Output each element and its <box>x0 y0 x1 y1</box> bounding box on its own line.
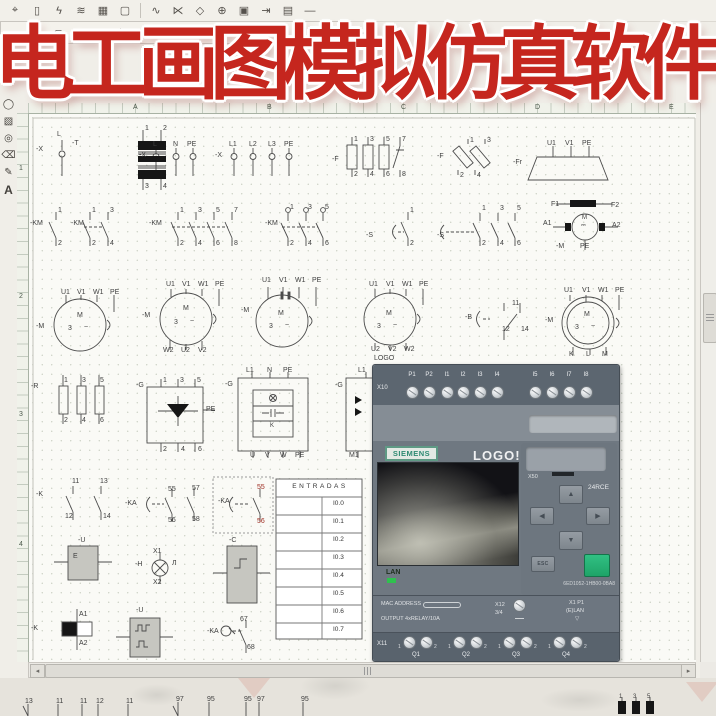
left-button[interactable]: ◀ <box>530 507 554 525</box>
ruler-vertical: 1234 <box>17 113 29 662</box>
winding-icon[interactable]: ≋ <box>70 2 92 19</box>
ruler-number: 1 <box>19 165 23 172</box>
circle-tool-icon[interactable]: ◎ <box>1 131 16 146</box>
ruler-number: 2 <box>19 293 23 300</box>
output-pair-label: 1 <box>398 644 401 650</box>
vertical-scrollbar[interactable] <box>700 103 716 662</box>
nozzle-icon-3[interactable]: ◁ <box>333 24 355 41</box>
terminal-screw <box>563 386 576 399</box>
line-icon[interactable]: — <box>299 2 321 19</box>
plc-terminal-label: I5 <box>527 372 543 378</box>
valve-icon-6[interactable]: ⋐ <box>157 24 179 41</box>
output-pair-label: 2 <box>534 644 537 650</box>
diamond-icon-1[interactable]: ◈ <box>245 24 267 41</box>
plc-top-terminal-strip: X10 P1P2I1I2I3I4I5I6I7I8 <box>373 365 619 405</box>
valve-icon-2[interactable]: ⋈ <box>69 24 91 41</box>
vertical-scroll-thumb[interactable] <box>703 293 716 343</box>
plc-terminal-label: I6 <box>544 372 560 378</box>
plc-terminal-label: I3 <box>472 372 488 378</box>
watermark-triangle <box>686 682 716 702</box>
ruler-number: 3 <box>19 411 23 418</box>
scroll-grip <box>364 667 373 675</box>
output-screw <box>503 636 516 649</box>
output-screw <box>420 636 433 649</box>
battery-icon[interactable]: ▯ <box>26 2 48 19</box>
table-icon[interactable]: ▤ <box>277 2 299 19</box>
diamond-icon-2[interactable]: ◇ <box>267 24 289 41</box>
background-palette-strip <box>0 678 716 716</box>
plc-terminal-label: I2 <box>455 372 471 378</box>
x1p1-label: X1 P1 <box>569 600 584 606</box>
mac-address-label: MAC ADDRESS <box>381 601 421 607</box>
scrollbar-corner <box>700 662 716 678</box>
right-arrow-icon: ▶ <box>595 512 600 520</box>
up-arrow-icon: ▲ <box>568 491 575 498</box>
ground-screw <box>513 599 526 612</box>
plc-terminal-label: I8 <box>578 372 594 378</box>
valve-icon-5[interactable]: ⊫ <box>135 24 157 41</box>
output-q-label: Q2 <box>462 652 470 658</box>
component-toolbar: ⇔⋒⊂⋈⊃⊨⊫⋐⋑⊙⊚◈◇▷▶◁◀ <box>0 21 340 44</box>
lan-label: LAN <box>386 569 400 576</box>
switch-icon[interactable]: ϟ <box>48 2 70 19</box>
ruler-letter: A <box>133 104 138 111</box>
x12-label: X12 <box>495 602 505 608</box>
output-screw <box>570 636 583 649</box>
nozzle-icon-1[interactable]: ▷ <box>289 24 311 41</box>
terminal-screw <box>423 386 436 399</box>
plc-terminal-label: I7 <box>561 372 577 378</box>
watermark-triangle <box>238 678 270 698</box>
plc-part-number: 6ED1052-1HB00-0BA8 <box>525 581 615 587</box>
plc-mid-band <box>373 405 619 441</box>
grid-component-icon[interactable]: ▦ <box>92 2 114 19</box>
ruler-letter: B <box>267 104 272 111</box>
x12-sub-label: 3/4 <box>495 610 503 616</box>
output-screw <box>453 636 466 649</box>
terminal-screw <box>406 386 419 399</box>
siemens-logo-plc[interactable]: X10 P1P2I1I2I3I4I5I6I7I8 SIEMENS LOGO! X… <box>372 364 620 662</box>
output-pair-label: 1 <box>498 644 501 650</box>
output-q-label: Q1 <box>412 652 420 658</box>
left-arrow-icon: ◀ <box>539 512 544 520</box>
output-pair-label: 2 <box>584 644 587 650</box>
port-icon-1[interactable]: ⊙ <box>201 24 223 41</box>
output-screw <box>403 636 416 649</box>
frame-icon[interactable]: ▢ <box>114 2 136 19</box>
horizontal-scroll-thumb[interactable] <box>45 664 683 678</box>
output-pair-label: 1 <box>548 644 551 650</box>
hatch-tool-icon[interactable]: ▧ <box>1 114 16 129</box>
ruler-letter: E <box>669 104 674 111</box>
plc-terminal-label: P1 <box>404 372 420 378</box>
terminal-screw <box>546 386 559 399</box>
output-q-label: Q4 <box>562 652 570 658</box>
logo-product-label: LOGO! <box>473 448 521 463</box>
plc-card-slot-opening <box>552 472 574 476</box>
output-spec-label: OUTPUT 4xRELAY/10A <box>381 616 440 622</box>
watermark-blob <box>540 688 620 712</box>
plc-lcd-screen <box>377 462 519 566</box>
elan-label: (E)LAN <box>566 608 584 614</box>
down-arrow-icon: ▼ <box>568 537 575 544</box>
branch-icon[interactable]: ⋉ <box>167 2 189 19</box>
ruler-number: 4 <box>19 541 23 548</box>
plc-front-panel: SIEMENS LOGO! X50 24RCE ▲ ◀ ▶ ▼ ESC 6ED1… <box>373 441 619 595</box>
plc-terminal-label: I4 <box>489 372 505 378</box>
cylinder-icon-1[interactable]: ⇔ <box>3 24 25 41</box>
main-toolbar: ⌖▯ϟ≋▦▢∿⋉◇⊕▣⇥▤— <box>0 0 716 22</box>
contact-icon[interactable]: ∿ <box>145 2 167 19</box>
ok-button[interactable] <box>584 554 610 577</box>
nozzle-icon-2[interactable]: ▶ <box>311 24 333 41</box>
terminal-screw <box>529 386 542 399</box>
eraser-tool-icon[interactable]: ⌫ <box>1 148 16 163</box>
valve-icon-7[interactable]: ⋑ <box>179 24 201 41</box>
plc-info-band: MAC ADDRESS OUTPUT 4xRELAY/10A X12 3/4 X… <box>373 595 619 633</box>
ruler-horizontal: ABCDE <box>28 103 696 114</box>
terminal-screw <box>441 386 454 399</box>
port-icon-2[interactable]: ⊚ <box>223 24 245 41</box>
output-screw <box>470 636 483 649</box>
pen-tool-icon[interactable]: ✎ <box>1 165 16 180</box>
nozzle-icon-4[interactable]: ◀ <box>355 24 377 41</box>
plc-expansion-slot <box>529 415 617 433</box>
siemens-brand-badge: SIEMENS <box>385 446 438 461</box>
ellipse-tool-icon[interactable]: ◯ <box>1 97 16 112</box>
watermark-blob <box>130 684 184 706</box>
up-button[interactable]: ▲ <box>559 485 583 504</box>
pin-tool-icon[interactable]: ⌖ <box>4 2 26 19</box>
terminal-screw <box>491 386 504 399</box>
mac-address-box <box>423 602 461 608</box>
valve-icon-4[interactable]: ⊨ <box>113 24 135 41</box>
scroll-grip <box>706 314 714 323</box>
ruler-letter: D <box>535 104 540 111</box>
toolbar-separator <box>140 3 141 18</box>
triangle-mark-icon: ▽ <box>575 616 579 622</box>
scroll-right-arrow[interactable]: ▸ <box>681 664 696 678</box>
node-icon[interactable]: ◇ <box>189 2 211 19</box>
right-button[interactable]: ▶ <box>586 507 610 525</box>
ruler-letter: C <box>401 104 406 111</box>
valve-icon-3[interactable]: ⊃ <box>91 24 113 41</box>
esc-button[interactable]: ESC <box>531 556 555 572</box>
output-pair-label: 2 <box>434 644 437 650</box>
box-component-icon[interactable]: ▣ <box>233 2 255 19</box>
lan-led <box>387 578 396 583</box>
plc-terminal-label: P2 <box>421 372 437 378</box>
horizontal-scrollbar[interactable]: ◂ ▸ <box>28 662 696 678</box>
valve-icon-1[interactable]: ⊂ <box>47 24 69 41</box>
plc-model-label: 24RCE <box>588 484 609 491</box>
output-pair-label: 2 <box>484 644 487 650</box>
plc-x50-label: X50 <box>528 474 538 480</box>
plc-output-terminal-strip: X11 12Q112Q212Q312Q4 <box>373 633 619 661</box>
text-tool-icon[interactable]: A <box>1 182 16 197</box>
junction-icon[interactable]: ⊕ <box>211 2 233 19</box>
connector-icon[interactable]: ⇥ <box>255 2 277 19</box>
plc-terminal-label: I1 <box>439 372 455 378</box>
plc-keypad-panel: X50 24RCE ▲ ◀ ▶ ▼ ESC 6ED1052-1HB00-0BA8 <box>521 443 617 595</box>
cylinder-icon-2[interactable]: ⋒ <box>25 24 47 41</box>
scroll-left-arrow[interactable]: ◂ <box>30 664 45 678</box>
terminal-screw <box>457 386 470 399</box>
output-q-label: Q3 <box>512 652 520 658</box>
ground-icon <box>515 618 524 619</box>
terminal-screw <box>580 386 593 399</box>
output-screw <box>520 636 533 649</box>
drawing-tool-palette: ◯▧◎⌫✎A <box>0 97 17 197</box>
terminal-screw <box>474 386 487 399</box>
down-button[interactable]: ▼ <box>559 531 583 550</box>
output-pair-label: 1 <box>448 644 451 650</box>
plc-card-slot <box>526 447 606 471</box>
output-screw <box>553 636 566 649</box>
